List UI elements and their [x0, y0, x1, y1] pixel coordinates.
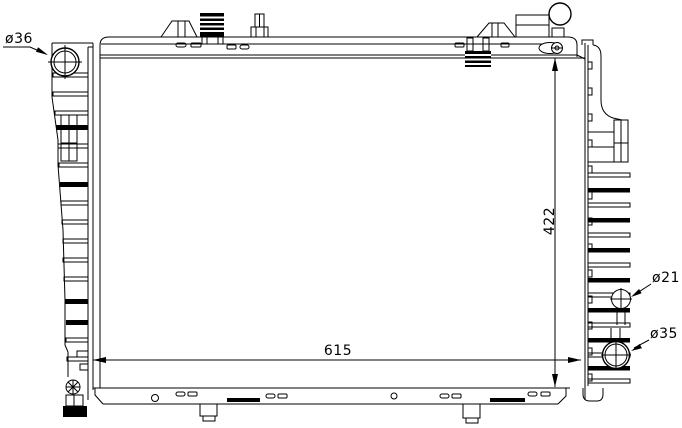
- callout-inlet-diameter: ø36: [3, 31, 48, 55]
- dimension-height-422: 422: [542, 58, 558, 387]
- dimension-width-615: 615: [93, 343, 581, 363]
- dimension-height-label: 422: [542, 207, 558, 235]
- top-mount-bracket-right: [477, 3, 571, 37]
- bottom-tank: [93, 388, 570, 423]
- upper-port-diameter-label: ø21: [652, 270, 680, 286]
- outlet-diameter-label: ø35: [650, 326, 678, 342]
- bottom-tank-bar-right: [490, 398, 525, 402]
- drain-plug-left: [63, 380, 87, 417]
- bottom-mount-tab-left: [200, 404, 217, 421]
- outlet-port: [601, 328, 631, 370]
- filler-cap: [200, 13, 224, 44]
- radiator-technical-drawing: 615 422 ø36 ø21 ø35: [0, 0, 682, 428]
- dim-anchor-boss: [539, 43, 563, 54]
- radiator-core: [100, 58, 585, 388]
- mounting-ring: [549, 3, 571, 25]
- bottom-tank-bar-left: [227, 398, 260, 402]
- callout-outlet-diameter: ø35: [631, 326, 678, 351]
- left-tank-bracket: [61, 115, 77, 161]
- right-tank-bracket: [588, 120, 628, 162]
- bottom-drain-tab: [463, 404, 480, 423]
- right-tank-foot: [583, 388, 603, 401]
- top-mount-bracket-left: [161, 21, 197, 37]
- callout-upper-port-diameter: ø21: [631, 270, 680, 297]
- bleed-valve: [251, 14, 268, 37]
- dimension-width-label: 615: [324, 343, 352, 359]
- left-tank-ribs: [53, 73, 88, 361]
- left-tank: [48, 43, 93, 417]
- top-tank: [100, 3, 585, 67]
- upper-port: [610, 288, 632, 325]
- cooler-fitting-block: [465, 38, 491, 67]
- inlet-diameter-label: ø36: [5, 31, 33, 47]
- right-tank: [582, 40, 632, 401]
